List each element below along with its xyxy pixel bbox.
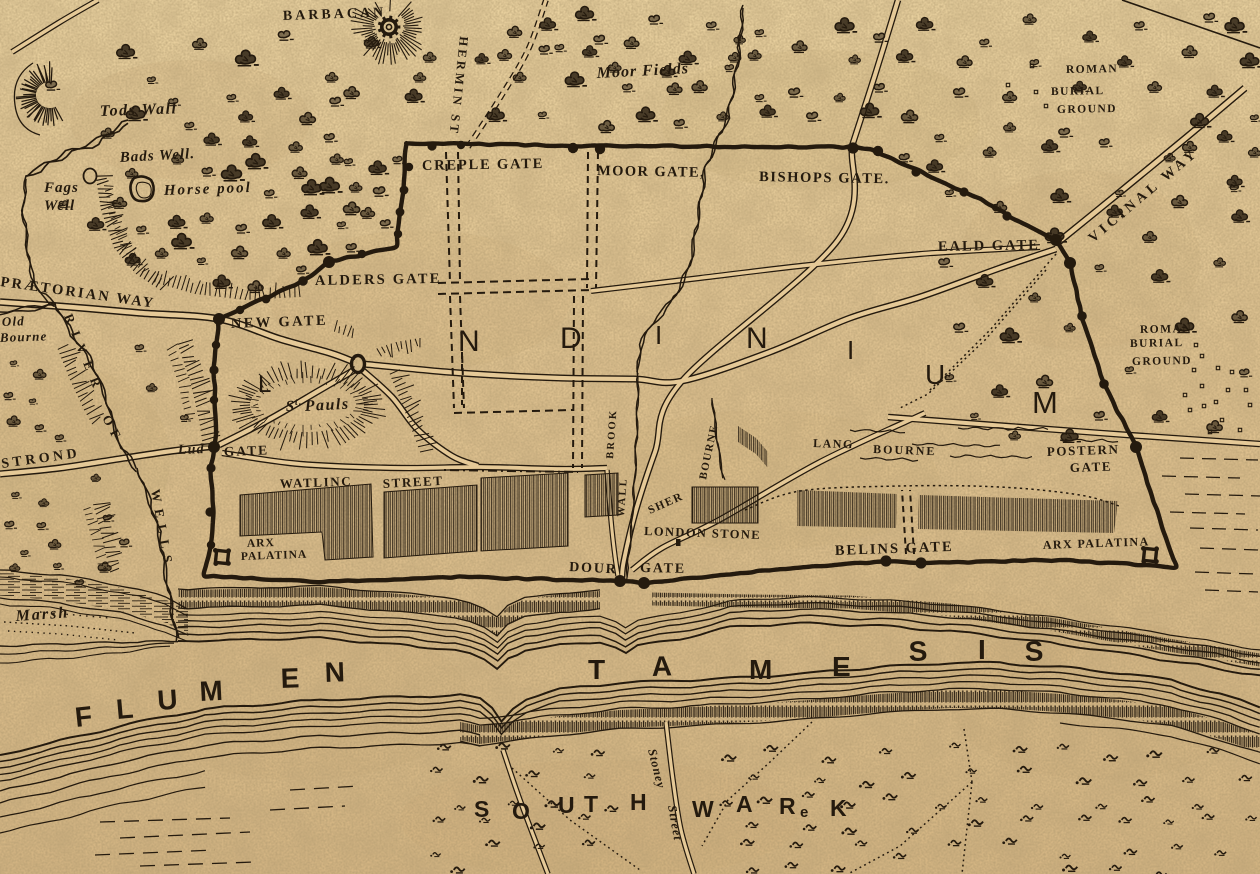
svg-text:EALD GATE: EALD GATE (938, 237, 1040, 255)
svg-text:N: N (458, 325, 481, 358)
svg-text:D: D (560, 322, 583, 355)
svg-text:CREPLE GATE: CREPLE GATE (422, 156, 545, 174)
svg-text:T: T (584, 791, 599, 817)
svg-text:Pauls: Pauls (303, 396, 350, 415)
svg-text:GROUND: GROUND (1132, 355, 1192, 368)
svg-text:WATLINC: WATLINC (280, 473, 353, 491)
svg-text:Lud: Lud (177, 442, 205, 458)
svg-text:BISHOPS GATE.: BISHOPS GATE. (759, 169, 890, 187)
svg-text:DOUR: DOUR (569, 560, 618, 578)
svg-text:H: H (630, 789, 648, 815)
svg-text:W: W (692, 796, 715, 822)
svg-text:I: I (978, 634, 986, 665)
svg-text:R: R (779, 793, 797, 819)
svg-text:Fags: Fags (43, 180, 79, 196)
svg-text:L: L (258, 371, 273, 398)
svg-text:BURIAL: BURIAL (1130, 337, 1184, 350)
svg-text:Horse pool: Horse pool (163, 180, 252, 199)
svg-text:N: N (324, 656, 345, 688)
svg-text:Bourne: Bourne (0, 328, 48, 345)
svg-text:I: I (847, 335, 855, 365)
svg-text:STREET: STREET (382, 473, 444, 491)
svg-text:Well: Well (44, 198, 75, 214)
svg-text:U: U (925, 359, 946, 390)
svg-text:GATE: GATE (1070, 459, 1113, 475)
svg-text:t.: t. (295, 397, 303, 408)
svg-text:U: U (558, 792, 576, 818)
svg-text:A: A (736, 791, 754, 817)
svg-text:LANG: LANG (813, 436, 854, 451)
svg-text:GATE: GATE (224, 442, 270, 459)
svg-text:GROUND: GROUND (1057, 103, 1117, 116)
svg-text:BURIAL: BURIAL (1051, 85, 1105, 98)
svg-text:A: A (651, 650, 672, 682)
svg-text:M: M (1032, 385, 1059, 420)
svg-text:MOOR GATE,: MOOR GATE, (597, 163, 705, 181)
svg-text:I: I (655, 320, 663, 350)
svg-text:S: S (474, 796, 491, 822)
svg-text:E: E (280, 662, 300, 694)
svg-text:BOURNE: BOURNE (873, 442, 937, 458)
svg-text:E: E (832, 651, 851, 682)
svg-text:Tods Wall: Tods Wall (100, 100, 178, 120)
svg-text:M: M (199, 675, 224, 707)
svg-text:NEW GATE: NEW GATE (231, 313, 329, 332)
svg-text:U: U (156, 684, 178, 716)
svg-text:N: N (746, 322, 769, 355)
svg-text:ALDERS GATE: ALDERS GATE (315, 271, 442, 289)
svg-text:S: S (1024, 635, 1044, 667)
svg-text:Old: Old (2, 313, 26, 329)
svg-text:O: O (512, 798, 531, 824)
svg-text:PALATINA: PALATINA (241, 549, 308, 563)
svg-text:M: M (749, 654, 772, 685)
svg-text:GATE: GATE (640, 561, 686, 577)
svg-text:F: F (73, 700, 93, 733)
svg-text:S: S (908, 635, 928, 667)
svg-text:ROMAN: ROMAN (1140, 323, 1192, 336)
svg-text:ROMAN: ROMAN (1066, 63, 1118, 76)
svg-text:K: K (830, 795, 848, 821)
svg-text:e: e (800, 804, 810, 821)
svg-text:POSTERN: POSTERN (1047, 441, 1120, 459)
svg-text:T: T (588, 654, 605, 685)
svg-text:ARX: ARX (247, 537, 275, 550)
svg-text:L: L (115, 693, 135, 725)
